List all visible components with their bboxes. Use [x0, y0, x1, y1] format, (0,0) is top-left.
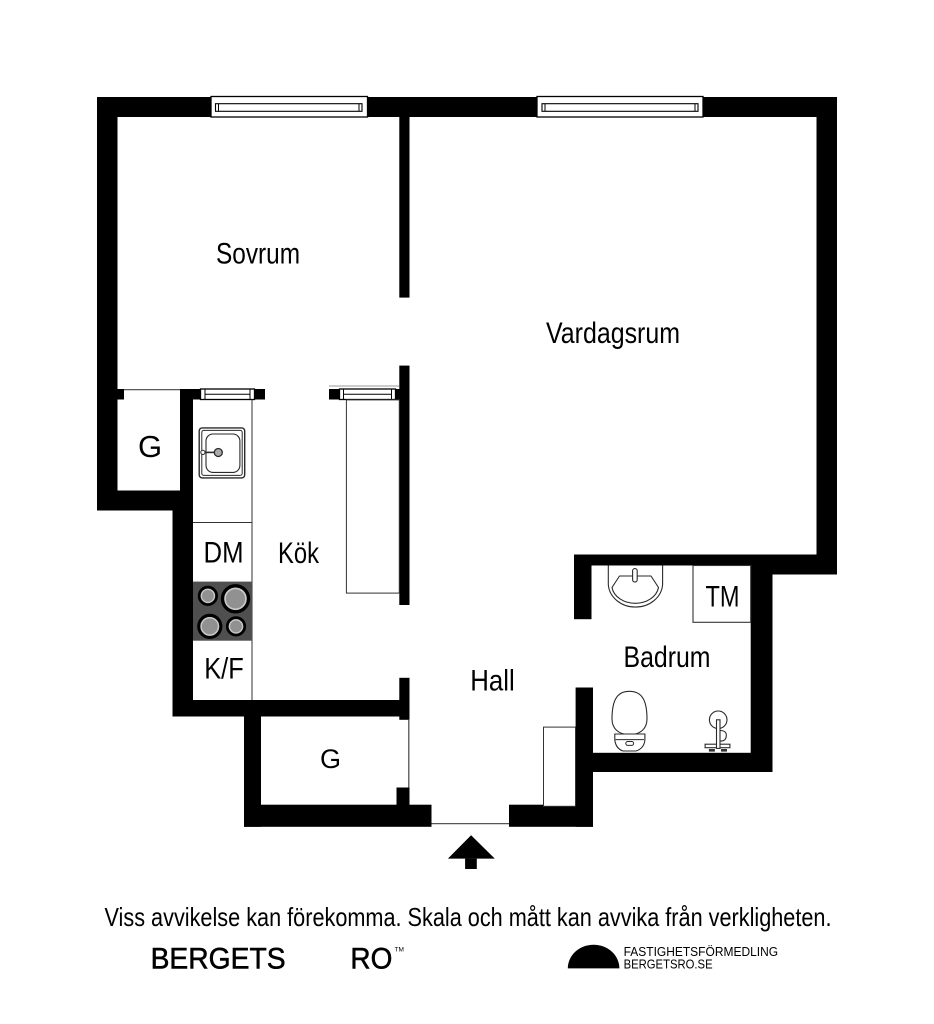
svg-text:TM: TM	[395, 947, 404, 954]
svg-text:Badrum: Badrum	[624, 641, 711, 674]
svg-text:Kök: Kök	[278, 537, 320, 570]
svg-text:TM: TM	[706, 581, 740, 614]
svg-text:BERGETSRO.SE: BERGETSRO.SE	[624, 957, 713, 972]
svg-text:BERGETS: BERGETS	[151, 943, 286, 976]
svg-text:Viss avvikelse kan förekomma.: Viss avvikelse kan förekomma. Skala och …	[105, 902, 832, 932]
svg-text:RO: RO	[350, 943, 392, 976]
svg-text:G: G	[320, 744, 341, 774]
svg-text:K/F: K/F	[204, 653, 244, 686]
svg-text:Hall: Hall	[470, 665, 515, 698]
svg-text:G: G	[138, 429, 162, 464]
svg-text:Vardagsrum: Vardagsrum	[546, 317, 680, 350]
svg-text:DM: DM	[204, 537, 244, 570]
svg-text:Sovrum: Sovrum	[216, 238, 300, 271]
